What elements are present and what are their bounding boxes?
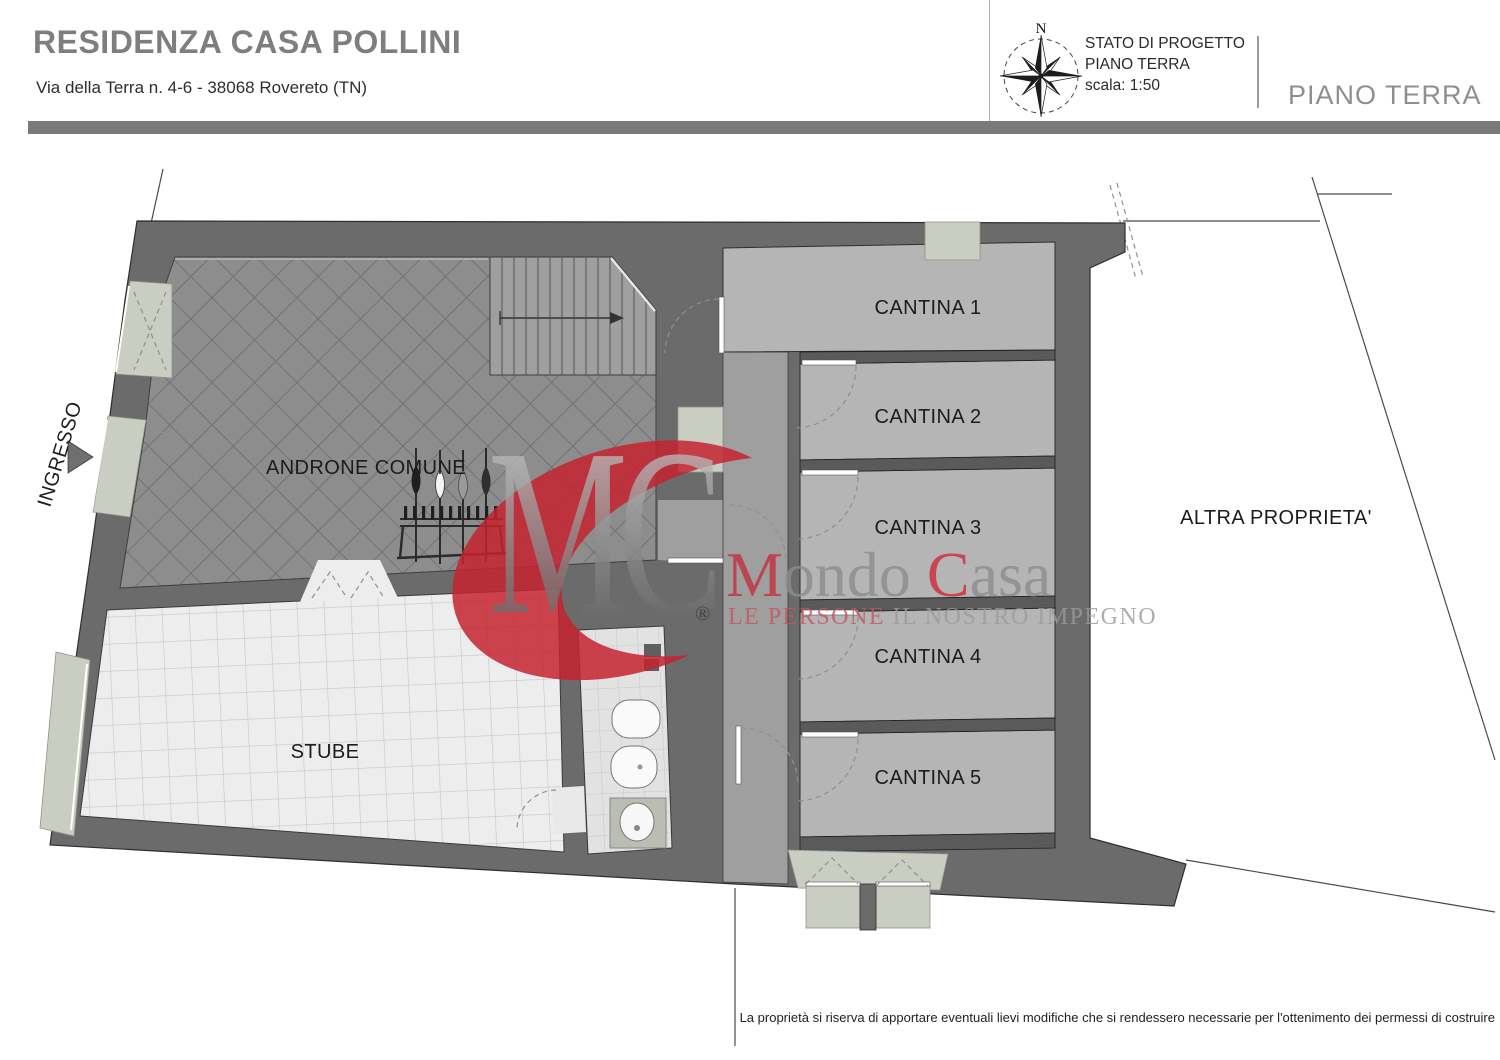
project-status-block: STATO DI PROGETTO PIANO TERRA scala: 1:5… [1085, 33, 1245, 96]
androne-label: ANDRONE COMUNE [266, 457, 466, 479]
brand-rest-asa: asa [970, 539, 1052, 610]
watermark-tagline: LE PERSONE IL NOSTRO IMPEGNO [728, 604, 1157, 630]
page-title: RESIDENZA CASA POLLINI [33, 24, 461, 61]
brand-initial-m: M [726, 539, 783, 610]
registered-mark: ® [695, 603, 710, 625]
floor-plan-page: RESIDENZA CASA POLLINI Via della Terra n… [0, 0, 1500, 1060]
brand-rest-ondo: ondo [783, 539, 927, 610]
altra-proprieta-label: ALTRA PROPRIETA' [1180, 507, 1372, 529]
cantina-5-label: CANTINA 5 [875, 767, 982, 789]
compass-north-label: N [1036, 21, 1047, 37]
compass-rose-icon: N [995, 18, 1087, 127]
floor-name-label: PIANO TERRA [1288, 80, 1482, 111]
header-divider-right [1257, 36, 1259, 108]
bathroom-door [552, 786, 586, 834]
tagline-red: LE PERSONE [728, 604, 893, 630]
watermark-monogram: MC [488, 400, 715, 664]
cantina-4-label: CANTINA 4 [875, 646, 982, 668]
status-line-2: PIANO TERRA [1085, 54, 1245, 75]
header-divider-left [989, 0, 990, 123]
title-bar [28, 121, 1500, 134]
page-subtitle: Via della Terra n. 4-6 - 38068 Rovereto … [36, 78, 367, 98]
brand-initial-c: C [927, 539, 970, 610]
status-line-3: scala: 1:50 [1085, 75, 1245, 96]
footer-disclaimer: La proprietà si riserva di apportare eve… [400, 1010, 1495, 1025]
floor-plan-drawing: ANDRONE COMUNE STUBE CANTINA 1 CANTINA 2… [0, 0, 1500, 1060]
stube-label: STUBE [291, 741, 360, 763]
watermark-brand: Mondo Casa [726, 539, 1051, 610]
cantina-3-label: CANTINA 3 [875, 517, 982, 539]
tagline-gray: IL NOSTRO IMPEGNO [893, 604, 1158, 630]
cantina-2-label: CANTINA 2 [875, 406, 982, 428]
bidet-icon [611, 746, 657, 788]
status-line-1: STATO DI PROGETTO [1085, 33, 1245, 54]
rear-exits [788, 850, 948, 930]
cantina-1-label: CANTINA 1 [875, 297, 982, 319]
bathtub-icon [612, 700, 660, 738]
sink-icon [620, 803, 654, 841]
top-wall-niche [925, 222, 980, 260]
